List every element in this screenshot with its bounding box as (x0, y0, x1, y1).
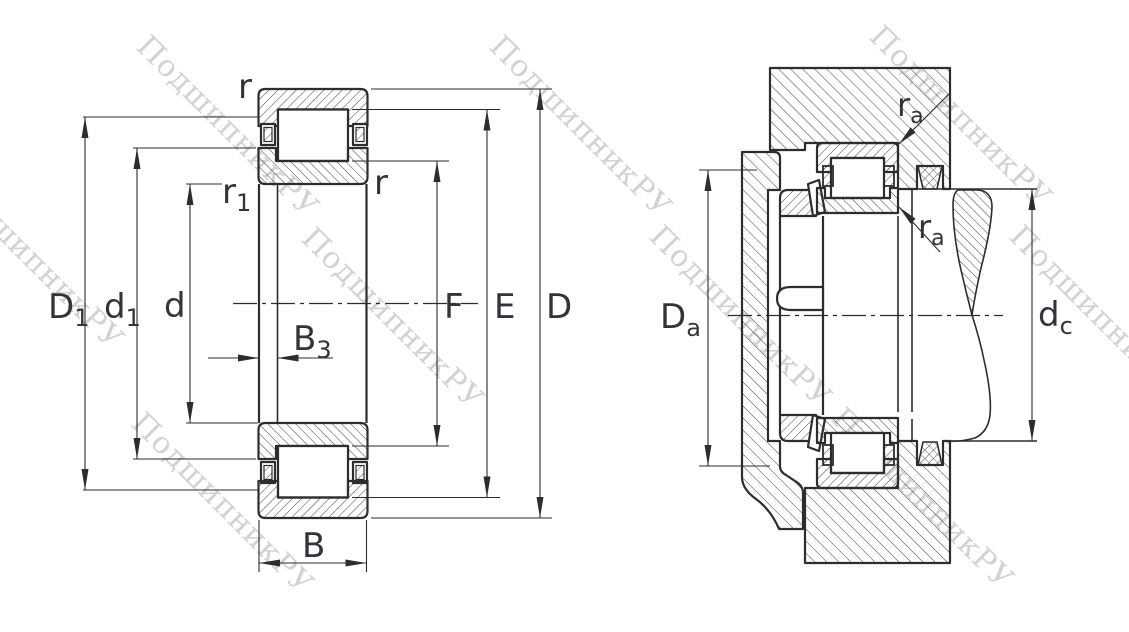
shaft-end-lobe (777, 287, 823, 310)
snap-ring-top (918, 166, 942, 189)
cage-rivet-right-top-hatch (356, 128, 364, 142)
arrowhead (899, 207, 916, 224)
arrowhead (187, 184, 194, 205)
technical-drawing-canvas: ПодшипникРУ ПодшипникРУ ПодшипникРУ Подш… (0, 0, 1129, 632)
snap-ring-bottom (918, 442, 942, 465)
arrowhead (187, 402, 194, 423)
arrowhead (134, 438, 141, 459)
bearing-drawing-svg: ПодшипникРУ ПодшипникРУ ПодшипникРУ Подш… (0, 0, 1129, 632)
label-D: D (546, 287, 572, 327)
arrowhead (705, 445, 712, 466)
cage-rivet-left-bottom-hatch (264, 466, 272, 480)
watermark-text: ПодшипникРУ (0, 161, 130, 357)
arrowhead (537, 497, 544, 518)
label-ra-bottom: ra (918, 208, 945, 251)
arrowhead (346, 560, 367, 567)
arrowhead (484, 110, 491, 131)
label-Da: Da (660, 297, 701, 342)
mounted-roller-bottom (831, 433, 884, 473)
label-r-top: r (238, 67, 252, 107)
arrowhead (484, 477, 491, 498)
watermark-text: ПодшипникРУ (482, 29, 678, 225)
arrowhead (1029, 420, 1036, 441)
cage-rivet-right-bottom-hatch (356, 466, 364, 480)
mounted-cage-right-top (884, 166, 894, 186)
arrowhead (705, 170, 712, 191)
label-r1: r1 (222, 172, 251, 217)
arrowhead (82, 117, 89, 138)
arrowhead (134, 148, 141, 169)
label-d1: d1 (104, 287, 141, 332)
label-r-inner: r (374, 163, 388, 203)
label-F: F (444, 287, 464, 327)
cage-rivet-left-top-hatch (264, 128, 272, 142)
label-d: d (164, 286, 186, 326)
roller-top (278, 110, 348, 162)
shaft-break-curve (950, 315, 990, 441)
label-E: E (494, 287, 515, 327)
mounted-roller-top (831, 158, 884, 198)
arrowhead (82, 469, 89, 490)
left-view-bearing-section: D1 d1 d F E D r r r1 B3 B (48, 67, 572, 572)
arrowhead (434, 161, 441, 182)
label-B3: B3 (293, 319, 332, 364)
shaft-section-teardrop (953, 190, 992, 315)
arrowhead (238, 355, 259, 362)
label-B: B (302, 526, 325, 566)
arrowhead (434, 425, 441, 446)
roller-bottom (278, 446, 348, 498)
mounted-cage-left-top (823, 166, 833, 186)
